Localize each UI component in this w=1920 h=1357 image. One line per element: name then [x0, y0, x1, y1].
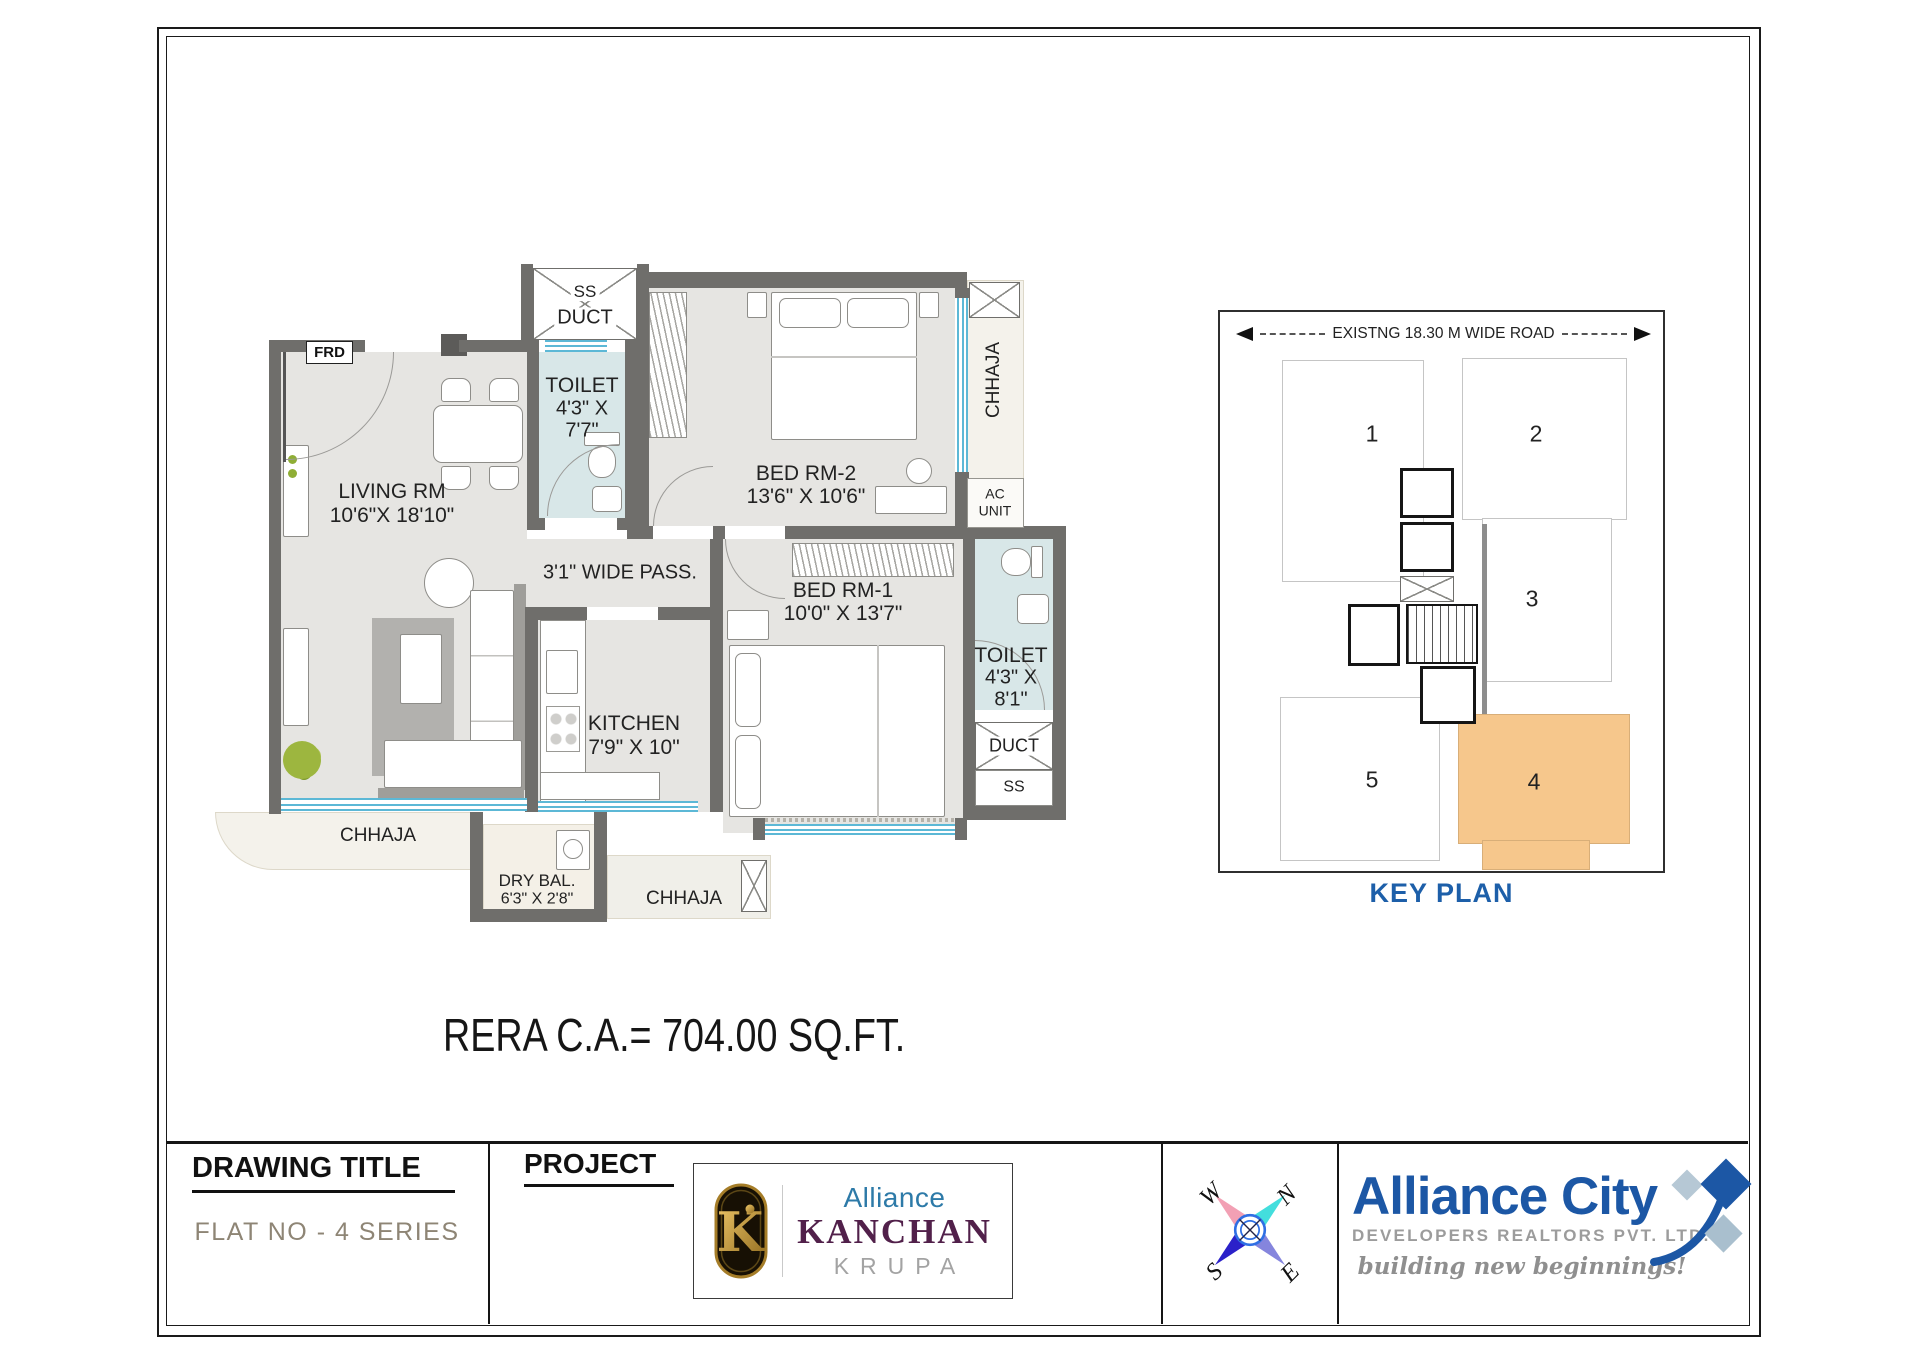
drawing-title-label: DRAWING TITLE	[192, 1152, 455, 1193]
window	[545, 340, 607, 352]
sofa-back	[378, 788, 524, 798]
key-plan-unit-4-highlight	[1482, 840, 1590, 870]
wall	[470, 909, 607, 922]
project-logo-brand: Alliance	[843, 1182, 945, 1214]
pillow	[779, 298, 841, 328]
project-label: PROJECT	[524, 1148, 674, 1187]
label-duct-right: DUCT	[986, 737, 1042, 756]
title-block-divider	[1161, 1141, 1163, 1324]
stove-icon	[546, 706, 580, 752]
pillow	[847, 298, 909, 328]
core-duct-box	[1400, 576, 1454, 602]
label-passage: 3'1" WIDE PASS.	[543, 563, 697, 584]
wall	[633, 272, 967, 288]
title-block-divider	[488, 1141, 490, 1324]
label-drybal-name: DRY BAL.	[499, 872, 576, 890]
project-logo-box: K Alliance KANCHAN KRUPA	[693, 1163, 1013, 1299]
label-ss-top: SS	[571, 283, 600, 301]
road-arrow-right-icon	[1634, 327, 1651, 341]
plant-icon	[288, 469, 297, 478]
bed	[729, 645, 945, 817]
washing-machine-drum	[563, 839, 583, 859]
blanket-fold	[771, 356, 917, 358]
blanket-fold	[877, 645, 879, 817]
road-dash-line	[1260, 333, 1325, 335]
dining-table	[433, 405, 523, 463]
pillow	[735, 735, 761, 809]
wall	[785, 526, 963, 539]
title-block-divider	[166, 1141, 1748, 1144]
rera-area-text: RERA C.A.= 704.00 SQ.FT.	[443, 1008, 905, 1062]
road-line: EXISTNG 18.30 M WIDE ROAD	[1236, 322, 1651, 346]
wall	[521, 264, 533, 342]
sofa	[384, 740, 522, 788]
bedside-table	[747, 292, 767, 318]
key-plan-title: KEY PLAN	[1218, 878, 1665, 909]
lift-box	[1420, 666, 1476, 724]
label-bed1-dims: 10'0" X 13'7"	[784, 603, 903, 625]
wall	[470, 812, 483, 922]
label-ss-right: SS	[1003, 780, 1024, 797]
drawing-title-value: FLAT NO - 4 SERIES	[166, 1218, 488, 1247]
wall	[955, 818, 967, 840]
kitchen-sink	[546, 650, 578, 694]
company-subtitle: DEVELOPERS REALTORS PVT. LTD.	[1352, 1226, 1692, 1246]
kitchen-counter	[540, 772, 660, 800]
key-plan-unit-number: 5	[1366, 767, 1379, 794]
wall	[594, 812, 607, 910]
window	[281, 798, 527, 811]
wall	[525, 607, 538, 812]
duct-box	[741, 860, 767, 912]
bedside-table	[919, 292, 939, 318]
label-chhaja-bottom: CHHAJA	[646, 889, 722, 909]
road-dash-line	[1562, 333, 1627, 335]
lift-box	[1400, 522, 1454, 572]
label-toilet2-dims: 8'1"	[994, 690, 1027, 711]
label-toilet1-dims: 7'7"	[565, 421, 598, 442]
logo-divider	[782, 1185, 783, 1277]
window	[538, 801, 698, 812]
company-logo-block: Alliance City DEVELOPERS REALTORS PVT. L…	[1352, 1170, 1692, 1280]
key-plan-unit-number: 3	[1526, 586, 1539, 613]
chhaja-hatch-line	[765, 818, 955, 822]
wall	[955, 288, 969, 298]
wall	[753, 818, 765, 840]
label-chhaja-right: CHHAJA	[984, 342, 1004, 418]
label-toilet2-name: TOILET	[974, 645, 1047, 667]
key-plan-unit-number: 1	[1366, 421, 1379, 448]
wall	[527, 340, 539, 530]
wall	[527, 518, 545, 530]
dresser	[875, 486, 947, 514]
key-plan-box: EXISTNG 18.30 M WIDE ROAD 1 2 3 5 4	[1218, 310, 1665, 873]
wall	[710, 539, 723, 607]
label-living-name: LIVING RM	[338, 481, 445, 503]
title-block-divider	[1337, 1141, 1339, 1324]
label-toilet2-dims: 4'3" X	[985, 668, 1037, 689]
pillow	[735, 653, 761, 727]
cabinet	[283, 628, 309, 726]
label-chhaja-left: CHHAJA	[340, 826, 416, 846]
wardrobe	[792, 543, 954, 577]
label-living-dims: 10'6"X 18'10"	[330, 505, 455, 527]
dining-chair	[489, 378, 519, 402]
wash-basin	[1017, 594, 1049, 624]
label-kitchen-name: KITCHEN	[588, 713, 680, 735]
project-logo-text: Alliance KANCHAN KRUPA	[797, 1182, 992, 1280]
stool	[906, 458, 932, 484]
compass-south-label: S	[1200, 1258, 1228, 1286]
wc-tank	[1031, 546, 1043, 578]
wall	[713, 526, 725, 539]
frd-label: FRD	[314, 344, 345, 361]
wall	[625, 340, 637, 530]
label-toilet1-dims: 4'3" X	[556, 399, 608, 420]
lift-box	[1400, 468, 1454, 518]
label-bed2-dims: 13'6" X 10'6"	[747, 486, 866, 508]
bedside-table	[727, 610, 769, 640]
wall	[617, 518, 637, 530]
duct-box	[969, 282, 1020, 318]
dining-chair	[489, 466, 519, 490]
label-ac-unit: AC	[985, 487, 1004, 502]
wall	[710, 607, 723, 812]
wall	[963, 806, 1066, 820]
plant-icon	[283, 741, 321, 779]
company-name: Alliance City	[1352, 1170, 1692, 1223]
company-tagline: building new beginnings!	[1352, 1253, 1692, 1280]
window	[957, 298, 968, 472]
label-bed1-name: BED RM-1	[793, 580, 893, 602]
compass-east-label: E	[1275, 1258, 1305, 1288]
label-toilet1-name: TOILET	[545, 375, 618, 397]
road-label: EXISTNG 18.30 M WIDE ROAD	[1332, 325, 1554, 343]
company-logo-diamonds-icon	[1648, 1158, 1768, 1276]
key-plan-unit-2	[1462, 358, 1627, 520]
lounge-chair	[424, 558, 474, 608]
road-arrow-left-icon	[1236, 327, 1253, 341]
kanchan-monogram-icon: K	[714, 1183, 768, 1279]
duct-box	[533, 268, 637, 340]
core-room-box	[1348, 604, 1400, 666]
stair-box	[1406, 604, 1478, 664]
monogram-letter: K	[717, 1200, 766, 1264]
label-ac-unit: UNIT	[979, 504, 1012, 519]
frd-box: FRD	[306, 341, 353, 364]
label-duct-top: DUCT	[554, 308, 616, 329]
label-drybal-dims: 6'3" X 2'8"	[501, 892, 574, 909]
wall	[269, 340, 281, 812]
key-plan-unit-4-highlight	[1458, 714, 1630, 844]
label-kitchen-dims: 7'9" X 10"	[588, 737, 679, 759]
window	[765, 824, 955, 835]
wall	[963, 526, 975, 722]
core-wall-line	[1482, 524, 1487, 714]
dining-chair	[441, 378, 471, 402]
key-plan-unit-3	[1482, 518, 1612, 682]
key-plan-unit-number: 2	[1530, 421, 1543, 448]
key-plan-unit-number: 4	[1528, 769, 1541, 796]
wardrobe	[649, 292, 687, 438]
project-logo-subname: KRUPA	[823, 1253, 967, 1280]
wall	[269, 798, 281, 814]
key-plan-unit-5	[1280, 697, 1440, 861]
wall	[658, 607, 723, 620]
wall	[637, 264, 649, 530]
wc-bowl	[1001, 548, 1031, 576]
coffee-table	[400, 634, 442, 704]
project-logo-name: KANCHAN	[797, 1214, 992, 1251]
wall	[1053, 526, 1066, 820]
compass-rose-icon: N E S W	[1176, 1154, 1324, 1306]
label-bed2-name: BED RM-2	[756, 463, 856, 485]
drawing-sheet: FRD SS DUCT TOILET 4'3" X 7'7" LIVING RM…	[0, 0, 1920, 1357]
